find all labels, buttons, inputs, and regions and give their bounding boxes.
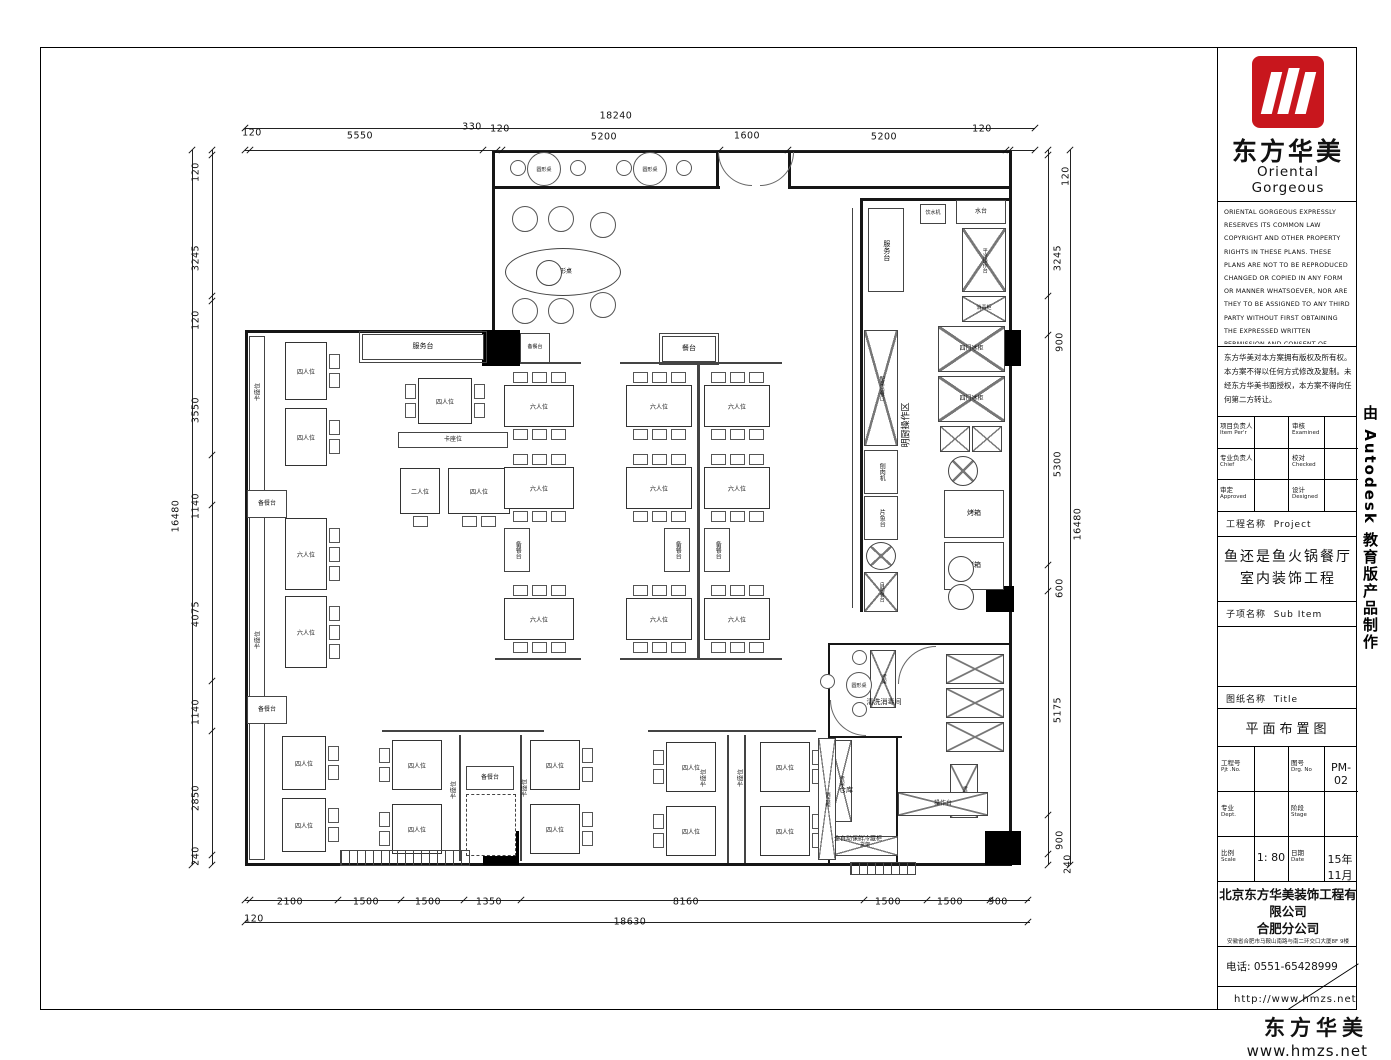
fixture-四门冰柜: 四门冰柜 bbox=[938, 326, 1005, 372]
chair bbox=[711, 642, 726, 653]
fixture-备餐台: 备餐台 bbox=[664, 528, 690, 572]
dimension-label: 120 bbox=[242, 128, 262, 139]
fixture bbox=[972, 426, 1002, 452]
chair bbox=[329, 566, 340, 581]
round-seat bbox=[676, 160, 692, 176]
chair bbox=[582, 831, 593, 846]
subitem-row: 子项名称 Sub Item bbox=[1226, 607, 1322, 620]
dimension-tick bbox=[1031, 146, 1038, 153]
chair bbox=[513, 372, 528, 383]
fixture-消毒柜: 消毒柜 bbox=[962, 296, 1006, 322]
dining-table: 四人位 bbox=[448, 468, 510, 514]
chair bbox=[633, 429, 648, 440]
dimension-label: 2850 bbox=[191, 785, 202, 811]
dimension-label: 1140 bbox=[191, 699, 202, 725]
dimension-label: 8160 bbox=[673, 897, 699, 908]
fixture-平冷操作台: 平冷操作台 bbox=[962, 228, 1006, 292]
partition-line bbox=[520, 735, 522, 861]
chair bbox=[749, 511, 764, 522]
dining-table: 六人位 bbox=[704, 598, 770, 640]
dimension-line bbox=[212, 150, 213, 865]
plan-label: 卡座位 bbox=[520, 779, 529, 797]
chair bbox=[532, 454, 547, 465]
fixture-备餐台: 备餐台 bbox=[520, 333, 550, 363]
dining-table: 六人位 bbox=[626, 385, 692, 427]
dimension-line bbox=[1070, 150, 1071, 865]
dining-table: 四人位 bbox=[285, 408, 327, 466]
round-seat bbox=[616, 160, 632, 176]
fixture-饮水机: 饮水机 bbox=[920, 204, 946, 224]
fixture-备餐台: 备餐台 bbox=[247, 490, 287, 518]
copyright-en: ORIENTAL GORGEOUS EXPRESSLY RESERVES ITS… bbox=[1224, 206, 1352, 344]
chair bbox=[532, 642, 547, 653]
chair bbox=[328, 746, 339, 761]
dining-table: 四人位 bbox=[392, 804, 442, 854]
fixture-服务台: 服务台 bbox=[868, 208, 904, 292]
structural-column bbox=[985, 831, 1021, 865]
plan-label: 卡座位 bbox=[449, 781, 458, 799]
chair bbox=[730, 642, 745, 653]
door-swing bbox=[718, 152, 752, 186]
dining-table: 四人位 bbox=[392, 740, 442, 790]
dimension-tick bbox=[1024, 896, 1031, 903]
chair bbox=[551, 642, 566, 653]
chair bbox=[513, 511, 528, 522]
chair bbox=[653, 769, 664, 784]
chair bbox=[328, 827, 339, 842]
round-seat bbox=[590, 292, 616, 318]
wall bbox=[860, 198, 863, 612]
chair bbox=[711, 511, 726, 522]
fixture bbox=[536, 260, 562, 286]
dimension-label: 240 bbox=[1063, 854, 1074, 874]
logo: 东方华美 Oriental Gorgeous bbox=[1218, 48, 1358, 201]
chair bbox=[711, 372, 726, 383]
chair bbox=[379, 748, 390, 763]
plan-label: 卡座位 bbox=[253, 631, 262, 649]
chair bbox=[749, 585, 764, 596]
chair bbox=[730, 511, 745, 522]
chair bbox=[513, 585, 528, 596]
chair bbox=[671, 372, 686, 383]
chair bbox=[671, 585, 686, 596]
chair bbox=[551, 429, 566, 440]
drawing-number: PM-02 bbox=[1324, 761, 1358, 787]
project-name: 鱼还是鱼火锅餐厅 室内装饰工程 bbox=[1218, 546, 1358, 590]
autodesk-education-watermark: 由 Autodesk 教育版产品制作 bbox=[1360, 405, 1381, 735]
dimension-label: 1500 bbox=[353, 897, 379, 908]
dimension-label: 16480 bbox=[171, 500, 182, 533]
chair bbox=[652, 372, 667, 383]
dining-table: 六人位 bbox=[704, 467, 770, 509]
chair bbox=[749, 642, 764, 653]
partition-line bbox=[620, 658, 782, 660]
chair bbox=[328, 808, 339, 823]
round-seat bbox=[548, 206, 574, 232]
title-block: 东方华美 Oriental Gorgeous ORIENTAL GORGEOUS… bbox=[1217, 47, 1357, 1010]
dining-table: 四人位 bbox=[530, 804, 580, 854]
dining-table: 四人位 bbox=[282, 798, 326, 852]
door-swing bbox=[830, 700, 866, 736]
person-label: 校对 bbox=[1292, 454, 1316, 462]
dimension-label: 3245 bbox=[191, 245, 202, 271]
fixture-梭形桌: 梭形桌 bbox=[505, 248, 621, 296]
stairs bbox=[340, 850, 470, 866]
partition-line bbox=[727, 735, 729, 863]
fixture-水台: 水台 bbox=[956, 200, 1006, 224]
chair bbox=[474, 384, 485, 399]
dimension-label: 120 bbox=[972, 124, 992, 135]
dimension-tick bbox=[208, 861, 215, 868]
dining-table: 二人位 bbox=[400, 468, 440, 514]
sheet-row: 图纸名称 Title bbox=[1226, 692, 1298, 705]
dining-table: 四人位 bbox=[666, 806, 716, 856]
plan-label: 全自动保鲜冷藏柜 bbox=[834, 834, 882, 843]
chair bbox=[671, 429, 686, 440]
round-seat bbox=[570, 160, 586, 176]
logo-en: Oriental Gorgeous bbox=[1218, 164, 1358, 196]
round-seat bbox=[852, 650, 867, 665]
dimension-label: 3550 bbox=[191, 397, 202, 423]
dimension-label: 1500 bbox=[937, 897, 963, 908]
fixture bbox=[946, 688, 1004, 718]
fixture-片鱼台: 片鱼台 bbox=[864, 496, 898, 540]
partition-line bbox=[459, 735, 461, 861]
dining-table: 四人位 bbox=[760, 806, 810, 856]
chair bbox=[653, 750, 664, 765]
chair bbox=[671, 511, 686, 522]
dimension-label: 1600 bbox=[734, 131, 760, 142]
chair bbox=[462, 516, 477, 527]
chair bbox=[532, 511, 547, 522]
footer-url: www.hmzs.net bbox=[1150, 1042, 1368, 1060]
door-swing bbox=[898, 646, 936, 684]
dining-table: 四人位 bbox=[666, 742, 716, 792]
dimension-label: 900 bbox=[1055, 830, 1066, 850]
chair bbox=[329, 528, 340, 543]
fixture bbox=[866, 542, 896, 570]
dining-table: 六人位 bbox=[504, 598, 574, 640]
project-row: 工程名称 Project bbox=[1226, 517, 1312, 530]
plan-label: 卡座位 bbox=[253, 383, 262, 401]
dimension-label: 5200 bbox=[871, 132, 897, 143]
dimension-label: 3245 bbox=[1053, 245, 1064, 271]
round-seat bbox=[512, 206, 538, 232]
dimension-label: 120 bbox=[1061, 166, 1072, 186]
chair bbox=[329, 547, 340, 562]
chair bbox=[481, 516, 496, 527]
company-address: 安徽省合肥市马鞍山南路与南二环交口大厦8F 9楼 bbox=[1218, 937, 1358, 945]
wall bbox=[492, 186, 720, 189]
fixture-操作台: 操作台 bbox=[898, 792, 988, 816]
dining-table: 四人位 bbox=[760, 742, 810, 792]
wall bbox=[828, 643, 1012, 645]
dimension-label: 1500 bbox=[875, 897, 901, 908]
chair bbox=[582, 748, 593, 763]
dimension-line bbox=[245, 128, 1035, 129]
chair bbox=[329, 606, 340, 621]
persons-grid: 项目负责人Item Per'r 审核Examined 专业负责人Chief 校对… bbox=[1218, 416, 1358, 511]
chair bbox=[551, 454, 566, 465]
company-phone: 电话: 0551-65428999 bbox=[1226, 959, 1338, 974]
dimension-label: 18630 bbox=[614, 917, 647, 928]
chair bbox=[652, 511, 667, 522]
chair bbox=[474, 403, 485, 418]
chair bbox=[671, 454, 686, 465]
round-seat bbox=[820, 674, 835, 689]
partition-line bbox=[697, 365, 700, 658]
chair bbox=[551, 511, 566, 522]
date-value: 15年11月 bbox=[1322, 851, 1358, 883]
chair bbox=[653, 814, 664, 829]
chair bbox=[329, 625, 340, 640]
dimension-label: 16480 bbox=[1073, 508, 1084, 541]
plan-label: 卡座位 bbox=[736, 769, 745, 787]
chair bbox=[551, 372, 566, 383]
chair bbox=[711, 429, 726, 440]
fixture-卡座位: 卡座位 bbox=[398, 432, 508, 448]
fixture-刨肉机: 刨肉机 bbox=[864, 450, 898, 494]
fixture-备餐台: 备餐台 bbox=[704, 528, 730, 572]
dimension-label: 2100 bbox=[277, 897, 303, 908]
dining-table: 六人位 bbox=[626, 467, 692, 509]
chair bbox=[582, 767, 593, 782]
wall bbox=[828, 736, 902, 738]
fixture-配菜出餐口: 配菜出餐口 bbox=[864, 330, 898, 446]
dimension-label: 120 bbox=[191, 162, 202, 182]
chair bbox=[749, 372, 764, 383]
dining-table: 四人位 bbox=[282, 736, 326, 790]
wall bbox=[790, 186, 1012, 189]
dimension-label: 5550 bbox=[347, 131, 373, 142]
chair bbox=[551, 585, 566, 596]
chair bbox=[652, 642, 667, 653]
dimension-label: 900 bbox=[1055, 332, 1066, 352]
person-label: 审核 bbox=[1292, 422, 1319, 430]
footer-brand: 东方华美 bbox=[1150, 1012, 1368, 1042]
wall bbox=[245, 330, 495, 333]
chair bbox=[513, 454, 528, 465]
person-label: 设计 bbox=[1292, 486, 1318, 494]
chair bbox=[513, 642, 528, 653]
person-label: 审定 bbox=[1220, 486, 1246, 494]
fixture bbox=[948, 584, 974, 610]
fixture-服务台: 服务台 bbox=[362, 334, 484, 360]
chair bbox=[379, 812, 390, 827]
chair bbox=[532, 429, 547, 440]
dining-table: 六人位 bbox=[504, 467, 574, 509]
chair bbox=[405, 403, 416, 418]
partition-line bbox=[382, 730, 544, 732]
sheet-name: 平面布置图 bbox=[1218, 718, 1358, 737]
fixture bbox=[946, 654, 1004, 684]
plan-label: 清洗消毒间 bbox=[867, 697, 902, 707]
chair bbox=[633, 511, 648, 522]
partition-line bbox=[744, 735, 746, 863]
fixture bbox=[948, 456, 978, 486]
fixture-自助餐台: 自助餐台 bbox=[864, 572, 898, 612]
round-table: 圆形桌 bbox=[527, 152, 561, 186]
structural-column bbox=[482, 330, 520, 366]
dimension-label: 5200 bbox=[591, 132, 617, 143]
chair bbox=[633, 372, 648, 383]
dining-table: 六人位 bbox=[504, 385, 574, 427]
chair bbox=[749, 454, 764, 465]
partition-line bbox=[495, 658, 581, 660]
fixture bbox=[466, 794, 516, 856]
logo-mark-icon bbox=[1252, 56, 1324, 128]
stairs bbox=[850, 862, 916, 875]
round-seat bbox=[510, 160, 526, 176]
partition-line bbox=[648, 730, 816, 732]
chair bbox=[413, 516, 428, 527]
dimension-label: 5175 bbox=[1053, 697, 1064, 723]
copyright-cn: 东方华美对本方案拥有版权及所有权。本方案不得以任何方式修改及复制。未经东方华美书… bbox=[1224, 351, 1352, 413]
chair bbox=[532, 372, 547, 383]
chair bbox=[652, 429, 667, 440]
chair bbox=[513, 429, 528, 440]
wall bbox=[492, 150, 495, 333]
chair bbox=[711, 454, 726, 465]
chair bbox=[329, 644, 340, 659]
floor-plan: 四人位四人位六人位六人位四人位四人位四人位二人位四人位六人位六人位六人位六人位六… bbox=[0, 0, 1391, 1055]
dining-table: 四人位 bbox=[530, 740, 580, 790]
fixture bbox=[249, 336, 265, 860]
chair bbox=[532, 585, 547, 596]
person-label: 专业负责人 bbox=[1220, 454, 1253, 462]
partition-line bbox=[852, 208, 853, 608]
chair bbox=[329, 373, 340, 388]
chair bbox=[730, 454, 745, 465]
chair bbox=[379, 831, 390, 846]
wall bbox=[1009, 150, 1012, 866]
fixture bbox=[946, 722, 1004, 752]
fixture-备餐台: 备餐台 bbox=[504, 528, 530, 572]
dimension-label: 1350 bbox=[476, 897, 502, 908]
logo-cn: 东方华美 bbox=[1218, 132, 1358, 168]
round-table: 圆形桌 bbox=[633, 152, 667, 186]
partition-line bbox=[620, 362, 782, 364]
fixture bbox=[948, 556, 974, 582]
dimension-tick bbox=[1044, 861, 1051, 868]
fixture-餐台: 餐台 bbox=[662, 336, 716, 362]
dining-table: 六人位 bbox=[626, 598, 692, 640]
plan-label: 卡座位 bbox=[699, 769, 708, 787]
chair bbox=[329, 439, 340, 454]
dining-table: 六人位 bbox=[285, 596, 327, 668]
round-seat bbox=[512, 298, 538, 324]
fixture bbox=[940, 426, 970, 452]
fixture-四门冰柜: 四门冰柜 bbox=[938, 376, 1005, 422]
plan-label: 仓库 bbox=[839, 785, 853, 795]
dining-table: 六人位 bbox=[704, 385, 770, 427]
company-block: 北京东方华美装饰工程有限公司 合肥分公司 安徽省合肥市马鞍山南路与南二环交口大厦… bbox=[1218, 886, 1358, 945]
dimension-label: 120 bbox=[490, 124, 510, 135]
chair bbox=[582, 812, 593, 827]
chair bbox=[633, 585, 648, 596]
chair bbox=[749, 429, 764, 440]
dimension-label: 1140 bbox=[191, 493, 202, 519]
chair bbox=[633, 454, 648, 465]
dimension-line bbox=[1048, 150, 1049, 865]
dining-table: 六人位 bbox=[285, 518, 327, 590]
fixture-烤箱: 烤箱 bbox=[944, 490, 1004, 538]
dimension-tick bbox=[1031, 124, 1038, 131]
dimension-label: 120 bbox=[191, 310, 202, 330]
dining-table: 四人位 bbox=[285, 342, 327, 400]
chair bbox=[633, 642, 648, 653]
chair bbox=[328, 765, 339, 780]
chair bbox=[329, 420, 340, 435]
wall bbox=[245, 330, 248, 866]
chair bbox=[653, 833, 664, 848]
dining-table: 四人位 bbox=[418, 378, 472, 424]
chair bbox=[329, 354, 340, 369]
fixture-备餐台: 备餐台 bbox=[247, 696, 287, 724]
info-grid: 工程号Pjt .No. 图号Drg. No PM-02 专业Dept. 阶段St… bbox=[1218, 746, 1358, 881]
dimension-label: 18240 bbox=[600, 111, 633, 122]
dimension-label: 600 bbox=[1055, 578, 1066, 598]
fixture-备餐台: 备餐台 bbox=[466, 766, 514, 790]
round-seat bbox=[548, 298, 574, 324]
chair bbox=[730, 429, 745, 440]
person-label: 项目负责人 bbox=[1220, 422, 1253, 430]
plan-label: 明厨操作区 bbox=[899, 402, 912, 447]
chair bbox=[652, 585, 667, 596]
chair bbox=[671, 642, 686, 653]
dimension-label: 4075 bbox=[191, 601, 202, 627]
dimension-label: 5300 bbox=[1053, 451, 1064, 477]
chair bbox=[730, 585, 745, 596]
round-seat bbox=[590, 212, 616, 238]
chair bbox=[730, 372, 745, 383]
chair bbox=[711, 585, 726, 596]
dimension-line bbox=[245, 150, 1035, 151]
chair bbox=[405, 384, 416, 399]
dimension-tick bbox=[1024, 918, 1031, 925]
chair bbox=[379, 767, 390, 782]
round-table: 圆形桌 bbox=[846, 672, 872, 698]
chair bbox=[652, 454, 667, 465]
footer-brand-block: 东方华美 www.hmzs.net bbox=[1150, 1012, 1368, 1060]
dimension-label: 1500 bbox=[415, 897, 441, 908]
scale-value: 1: 80 bbox=[1254, 851, 1288, 864]
dimension-label: 330 bbox=[462, 122, 482, 133]
